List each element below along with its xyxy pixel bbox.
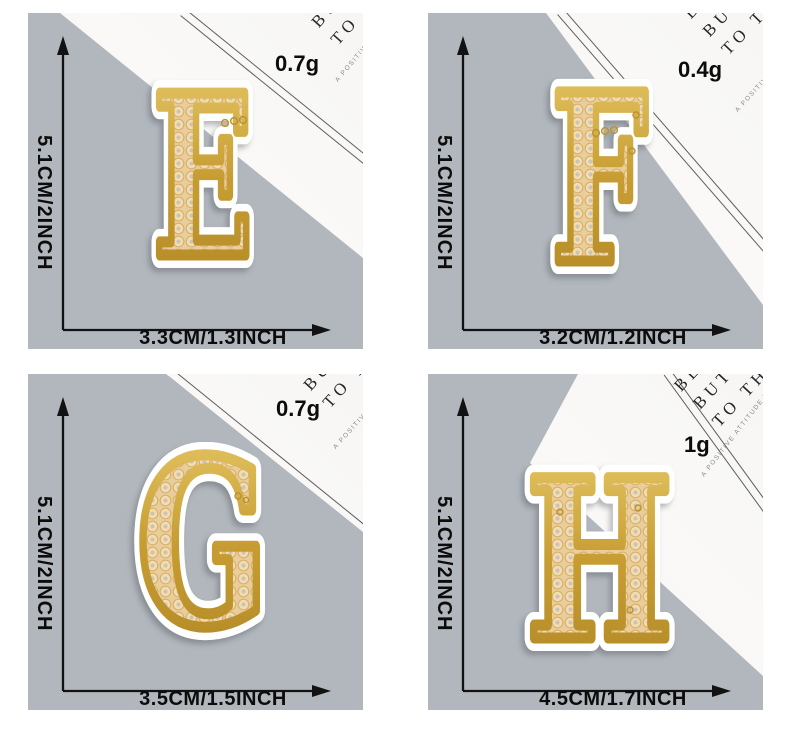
- up-arrowhead: [457, 36, 469, 55]
- letter-patch-h: H H H: [512, 460, 687, 652]
- height-label: 5.1CM/2INCH: [432, 135, 455, 270]
- width-label: 3.2CM/1.2INCH: [473, 327, 753, 349]
- height-label: 5.1CM/2INCH: [432, 496, 455, 631]
- height-label: 5.1CM/2INCH: [32, 496, 55, 631]
- product-measurement-collage: BEAUTY BUT UGLY TO THE A POSITIVE ATTITU…: [0, 0, 790, 731]
- letter-patch-g: G G G: [120, 442, 285, 642]
- quadrant-letter-f: BEAUTY BUT UGLY TO THE A POSITIVE ATTITU…: [428, 13, 763, 349]
- quadrant-letter-e: BEAUTY BUT UGLY TO THE A POSITIVE ATTITU…: [28, 13, 363, 349]
- width-label: 3.3CM/1.3INCH: [73, 327, 353, 349]
- patch-gold-layer: G: [137, 442, 269, 642]
- patch-gold-layer: H: [527, 460, 673, 652]
- letter-patch-e: E E E: [133, 79, 273, 275]
- height-label: 5.1CM/2INCH: [32, 135, 55, 270]
- letter-patch-f: F F F: [532, 77, 667, 279]
- width-label: 3.5CM/1.5INCH: [73, 688, 353, 710]
- quadrant-letter-g: BEAUTY BUT UGLY TO THE A POSITIVE ATTITU…: [28, 374, 363, 710]
- width-label: 4.5CM/1.7INCH: [473, 688, 753, 710]
- patch-gold-layer: F: [552, 77, 648, 279]
- up-arrowhead: [57, 36, 69, 55]
- patch-gold-layer: E: [153, 79, 253, 275]
- up-arrowhead: [57, 397, 69, 416]
- up-arrowhead: [457, 397, 469, 416]
- quadrant-letter-h: BEAUTY BUT UGLY TO THE A POSITIVE ATTITU…: [428, 374, 763, 710]
